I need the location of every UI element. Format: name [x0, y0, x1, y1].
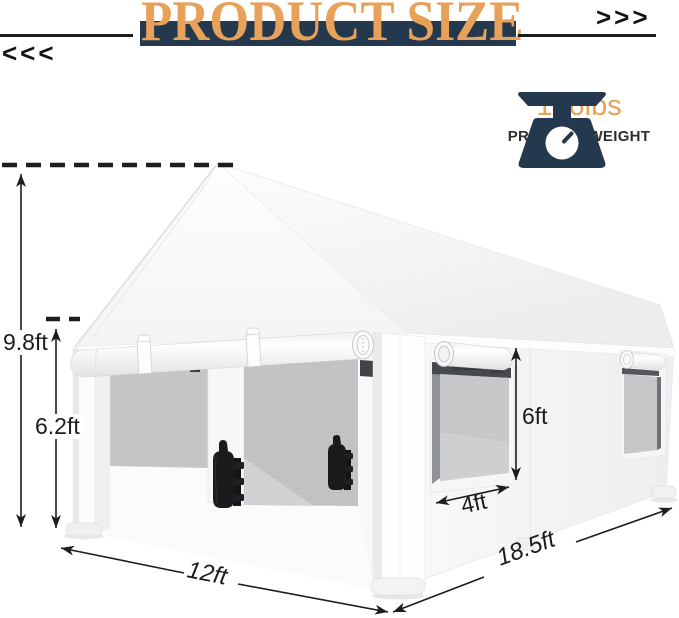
front-width-arrow-a [61, 548, 184, 573]
header-right-line [518, 34, 656, 37]
eave-height-label: 6.2ft [33, 414, 82, 439]
canopy-roof [75, 163, 674, 348]
side-window-far [620, 350, 666, 461]
side-window-near [430, 342, 514, 494]
page-title: PRODUCT SIZE [141, 0, 523, 50]
header-left-chevrons: <<< [2, 40, 57, 66]
header-right-chevrons: >>> [596, 4, 651, 30]
front-right-pole [371, 332, 425, 600]
window-height-label: 6ft [522, 405, 548, 428]
product-size-diagram: <<< PRODUCT SIZE >>> 136lbs PRODUCT WEIG… [0, 0, 679, 618]
header-left-line [0, 34, 133, 37]
scale-icon [517, 92, 607, 172]
window-width-label: 4ft [459, 490, 489, 518]
product-weight-badge: 136lbs PRODUCT WEIGHT [517, 92, 641, 145]
peak-height-label: 9.8ft [1, 330, 50, 355]
